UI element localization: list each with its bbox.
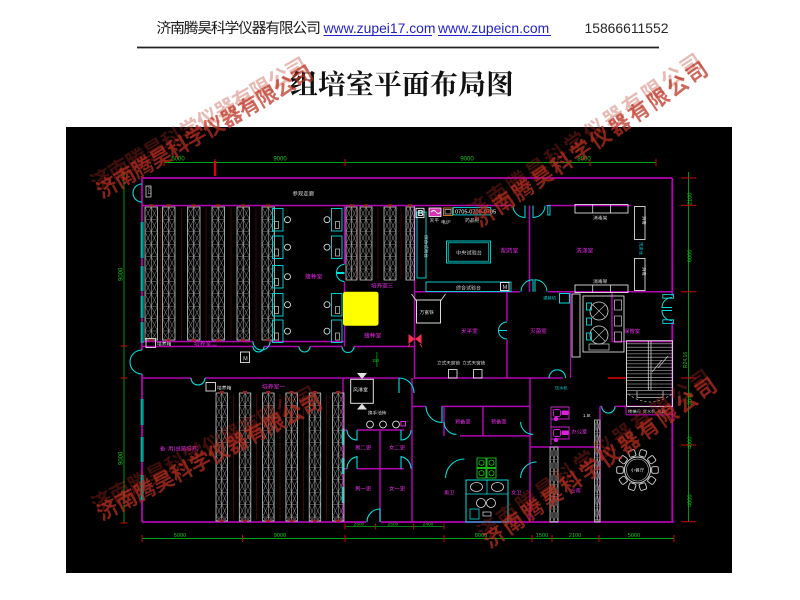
svg-text:5000: 5000 — [174, 533, 186, 539]
svg-text:4000: 4000 — [688, 437, 694, 449]
svg-text:2100: 2100 — [569, 533, 581, 539]
svg-text:5000: 5000 — [628, 533, 640, 539]
svg-text:9000: 9000 — [119, 451, 125, 465]
svg-text:9000: 9000 — [273, 157, 287, 163]
svg-text:2100: 2100 — [688, 193, 694, 205]
svg-text:1.5t: 1.5t — [583, 413, 591, 418]
svg-text:9000: 9000 — [274, 533, 286, 539]
svg-text:1500: 1500 — [536, 533, 548, 539]
svg-text:4000: 4000 — [688, 495, 694, 507]
svg-text:B: B — [418, 208, 424, 218]
svg-text:6000: 6000 — [688, 250, 694, 262]
svg-text:9000: 9000 — [460, 157, 474, 163]
svg-text:R24.16: R24.16 — [683, 352, 689, 368]
svg-text:150: 150 — [372, 358, 380, 363]
svg-text:www.zupeicn.com: www.zupeicn.com — [437, 20, 549, 36]
svg-text:15866611552: 15866611552 — [585, 20, 669, 36]
svg-text:9000: 9000 — [119, 267, 125, 281]
svg-text:www.zupei17.com: www.zupei17.com — [323, 20, 436, 36]
